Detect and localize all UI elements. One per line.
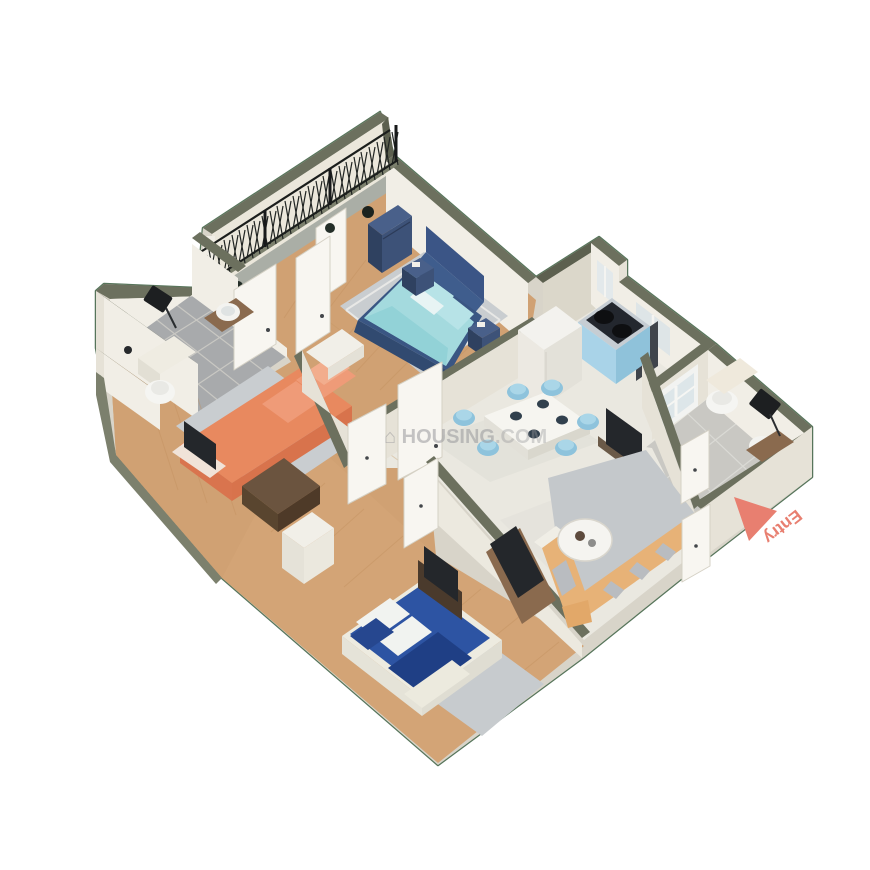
svg-text:⌂ HOUSING.COM: ⌂ HOUSING.COM: [384, 426, 547, 448]
